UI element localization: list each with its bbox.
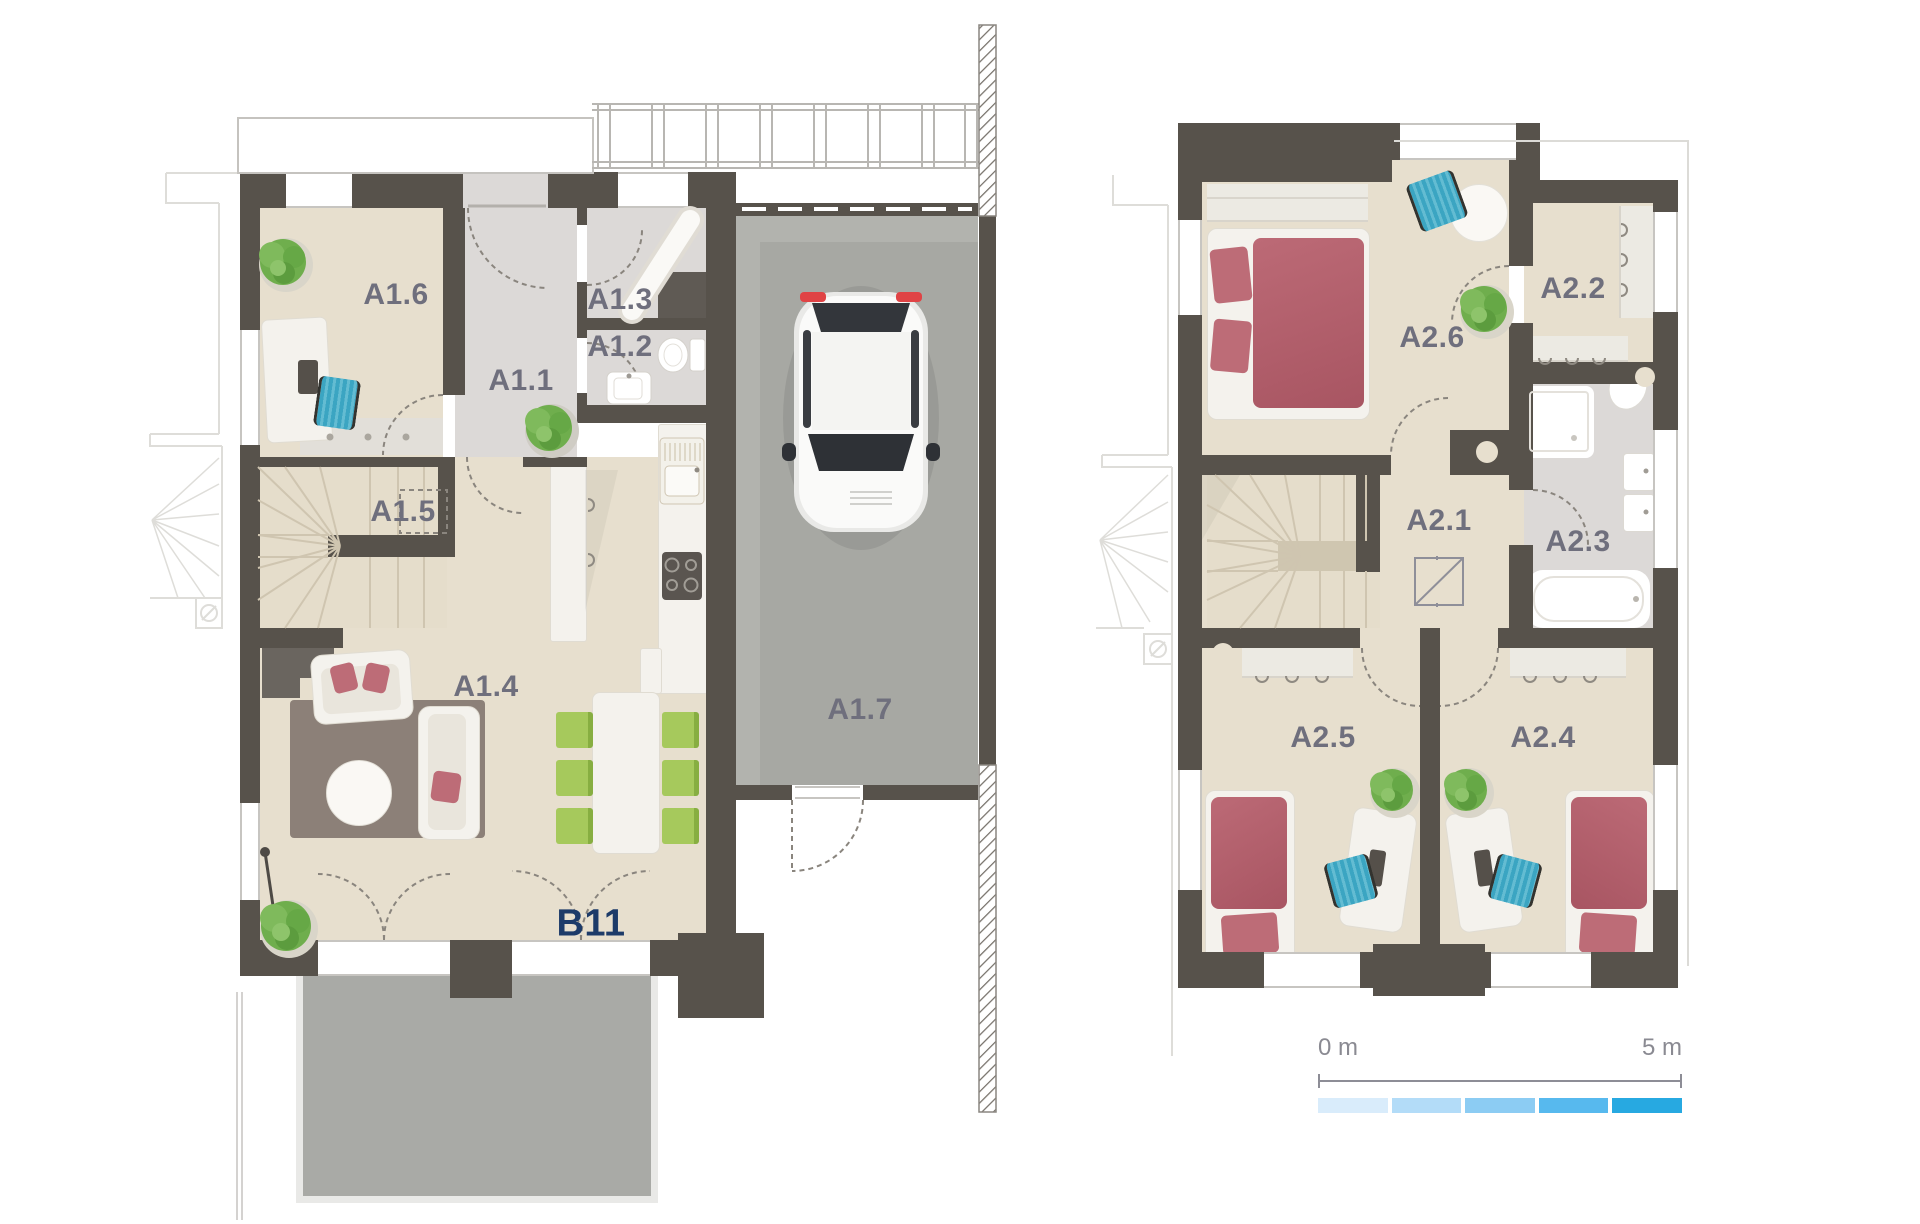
dining-chair xyxy=(556,808,593,844)
wall xyxy=(1653,568,1678,765)
wall xyxy=(240,172,260,330)
wall xyxy=(240,940,318,976)
window xyxy=(1653,212,1678,312)
cushion xyxy=(430,770,462,804)
wall xyxy=(1498,628,1509,648)
wall xyxy=(523,457,587,467)
scale-tick xyxy=(1680,1074,1682,1088)
stair-landing xyxy=(1278,541,1356,571)
window xyxy=(618,172,688,208)
shower xyxy=(1524,386,1594,458)
chimney-block xyxy=(678,933,764,1018)
window xyxy=(1653,430,1678,568)
wardrobe xyxy=(1619,206,1653,318)
scale-bar: 0 m 5 m xyxy=(1318,1034,1682,1120)
wall xyxy=(587,405,706,423)
terrace-door xyxy=(318,940,450,976)
scale-segment xyxy=(1318,1098,1388,1113)
blanket xyxy=(1571,797,1647,909)
pillow xyxy=(1579,912,1638,956)
wall xyxy=(240,457,455,467)
coffee-table xyxy=(326,760,392,826)
wall xyxy=(1356,475,1380,572)
wall xyxy=(443,208,465,395)
room-label-a1-4: A1.4 xyxy=(453,670,518,704)
wall xyxy=(1202,455,1391,475)
room-label-a2-5: A2.5 xyxy=(1290,721,1355,755)
scale-tick xyxy=(1318,1074,1320,1088)
wall xyxy=(577,208,587,225)
column xyxy=(1212,643,1234,665)
duvet xyxy=(1253,238,1364,408)
column xyxy=(1476,441,1498,463)
wall xyxy=(1591,952,1678,988)
room-floor-a1-1 xyxy=(455,172,577,457)
wall xyxy=(1360,952,1373,988)
wardrobe xyxy=(1207,184,1368,222)
window xyxy=(1178,770,1202,890)
kitchen-island xyxy=(550,465,587,642)
terrace xyxy=(296,969,658,1203)
wall xyxy=(1178,123,1202,220)
dining-chair xyxy=(662,808,699,844)
floor-plan-canvas: A1.1 A1.2 A1.3 A1.4 A1.5 A1.6 A1.7 B11 A… xyxy=(0,0,1920,1224)
window xyxy=(286,172,352,208)
wall xyxy=(1178,628,1360,648)
stair-wall xyxy=(328,535,447,557)
wall xyxy=(240,445,260,803)
wall xyxy=(1509,160,1533,266)
blanket xyxy=(1211,797,1287,909)
garage-wall xyxy=(736,785,792,800)
window xyxy=(1264,952,1360,988)
wall xyxy=(548,172,618,208)
scale-line xyxy=(1318,1080,1682,1082)
window xyxy=(240,330,260,445)
garage-floor-edge xyxy=(736,216,978,242)
scale-start-label: 0 m xyxy=(1318,1034,1358,1062)
scale-segment xyxy=(1392,1098,1462,1113)
wall xyxy=(1178,952,1264,988)
dining-chair xyxy=(556,760,593,796)
garage-floor-edge xyxy=(736,242,760,785)
scale-segments xyxy=(1318,1098,1682,1113)
hob xyxy=(662,552,702,600)
pillow xyxy=(1210,318,1252,373)
garage-wall xyxy=(979,216,996,765)
storage-unit xyxy=(658,272,706,318)
pillow xyxy=(1209,246,1252,304)
window xyxy=(1653,765,1678,890)
scale-segment xyxy=(1539,1098,1609,1113)
washbasin xyxy=(1623,494,1655,532)
unit-label-b11: B11 xyxy=(556,903,625,946)
dining-chair xyxy=(662,712,699,748)
window xyxy=(240,803,260,900)
wall xyxy=(587,318,706,330)
room-label-a1-2: A1.2 xyxy=(587,330,652,364)
garage-rear-door xyxy=(795,786,860,799)
dining-chair xyxy=(662,760,699,796)
room-label-a1-3: A1.3 xyxy=(587,283,652,317)
pillow xyxy=(1221,912,1280,956)
wall xyxy=(352,172,463,208)
room-label-a1-7: A1.7 xyxy=(827,693,892,727)
room-label-a2-6: A2.6 xyxy=(1399,321,1464,355)
wall-pier xyxy=(450,940,512,998)
window xyxy=(1491,952,1591,988)
wall xyxy=(706,208,736,933)
wall xyxy=(1653,312,1678,430)
wall xyxy=(1178,123,1392,182)
room-label-a2-3: A2.3 xyxy=(1545,525,1610,559)
wall xyxy=(577,393,587,423)
wall xyxy=(1653,180,1678,212)
wall xyxy=(1509,545,1533,648)
wall xyxy=(1533,628,1653,648)
scale-end-label: 5 m xyxy=(1642,1034,1682,1062)
room-label-a2-1: A2.1 xyxy=(1406,504,1471,538)
wall xyxy=(1392,123,1400,160)
washbasin xyxy=(1623,453,1655,491)
kitchen-counter xyxy=(640,648,662,694)
garage-wall xyxy=(736,203,978,216)
scale-segment xyxy=(1465,1098,1535,1113)
wall xyxy=(688,172,736,208)
dining-table xyxy=(592,692,660,854)
column xyxy=(1635,367,1655,387)
wall xyxy=(1420,628,1440,952)
window xyxy=(1400,123,1516,160)
garage-wall xyxy=(863,785,978,800)
room-label-a1-6: A1.6 xyxy=(363,278,428,312)
room-label-a2-4: A2.4 xyxy=(1510,721,1575,755)
wall xyxy=(1178,315,1202,770)
laptop xyxy=(298,360,318,394)
wall xyxy=(240,628,343,648)
tv-board xyxy=(262,678,300,698)
window xyxy=(1178,220,1202,315)
wall xyxy=(577,282,587,338)
scale-segment xyxy=(1612,1098,1682,1113)
room-label-a2-2: A2.2 xyxy=(1540,272,1605,306)
room-label-a1-1: A1.1 xyxy=(488,364,553,398)
office-chair xyxy=(313,375,362,430)
dining-chair xyxy=(556,712,593,748)
room-label-a1-5: A1.5 xyxy=(370,495,435,529)
wardrobe xyxy=(1524,336,1628,362)
bathtub xyxy=(1527,570,1650,628)
